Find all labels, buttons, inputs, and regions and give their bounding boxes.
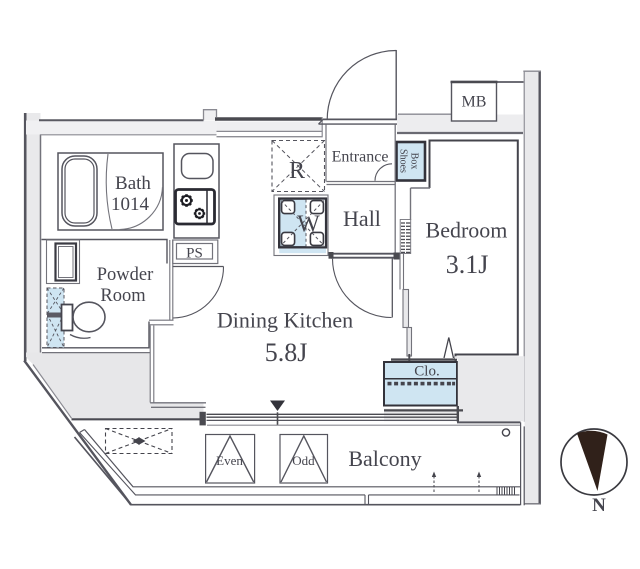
- svg-text:Entrance: Entrance: [332, 149, 389, 166]
- svg-text:Bath: Bath: [115, 173, 151, 194]
- svg-text:W: W: [297, 212, 320, 238]
- svg-text:Even: Even: [216, 453, 243, 468]
- svg-text:Bedroom: Bedroom: [426, 218, 508, 243]
- svg-text:Room: Room: [100, 286, 146, 306]
- svg-text:N: N: [592, 495, 606, 516]
- svg-text:Dining Kitchen: Dining Kitchen: [217, 308, 353, 333]
- svg-text:R: R: [289, 158, 305, 184]
- svg-text:Odd: Odd: [292, 453, 315, 468]
- svg-text:Balcony: Balcony: [348, 446, 421, 471]
- svg-text:Shoes: Shoes: [398, 149, 409, 173]
- svg-text:Hall: Hall: [343, 206, 381, 231]
- svg-text:3.1J: 3.1J: [446, 250, 489, 279]
- svg-text:Clo.: Clo.: [414, 364, 439, 380]
- svg-text:MB: MB: [462, 94, 487, 111]
- svg-text:PS: PS: [186, 246, 203, 262]
- svg-text:Powder: Powder: [97, 265, 154, 285]
- svg-text:1014: 1014: [111, 194, 150, 215]
- svg-text:5.8J: 5.8J: [265, 338, 308, 367]
- svg-text:Box: Box: [409, 153, 420, 170]
